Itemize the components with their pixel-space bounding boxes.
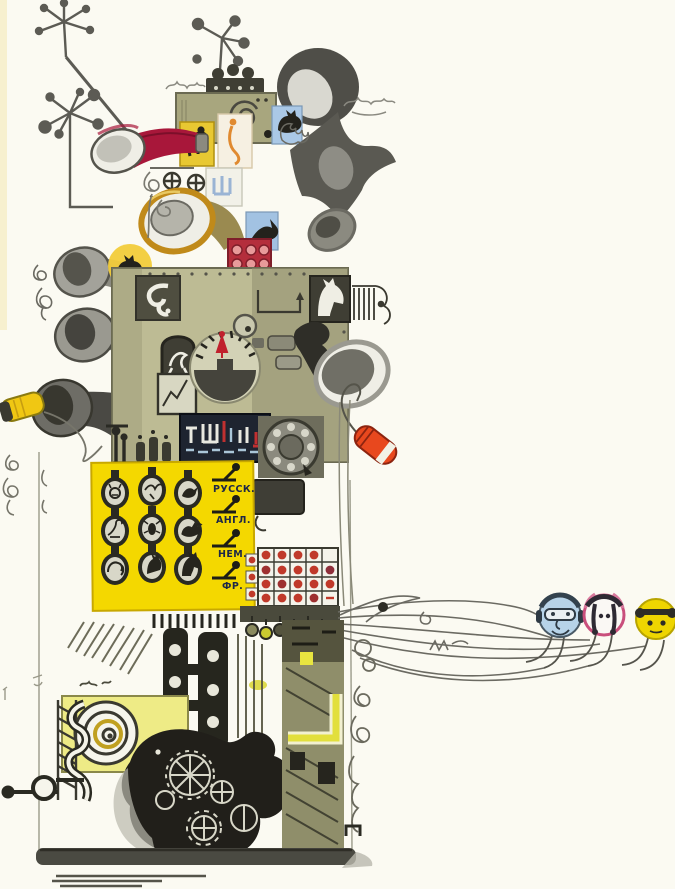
hand-crank (2, 777, 59, 799)
rotary-dial (258, 416, 324, 478)
machine-base (36, 848, 372, 886)
red-trumpet (86, 123, 208, 180)
label-russian: РУССК. (213, 484, 255, 495)
letters-card (206, 168, 242, 206)
small-horn-under-star (302, 202, 363, 259)
gauge (190, 331, 260, 403)
right-column (282, 620, 344, 852)
label-english: АНГЛ. (216, 515, 251, 526)
orange-figure-card (218, 114, 252, 168)
label-french: ФР. (222, 581, 243, 592)
top-knob-strip (206, 64, 264, 95)
glyph-plate (180, 414, 270, 462)
chart-frame (158, 374, 196, 414)
illustration-page: РУССК. АНГЛ. НЕМ. ФР. (0, 0, 675, 889)
page-edge (0, 0, 7, 330)
animal-buttons (101, 467, 202, 585)
coil-scribbles-left (3, 455, 47, 515)
scribble-small (80, 681, 111, 686)
wire-junction-dot (378, 602, 388, 612)
relay-box (252, 480, 304, 530)
hatch-left (68, 622, 152, 674)
label-german: НЕМ. (218, 549, 247, 560)
red-dot-strip (246, 554, 258, 600)
translation-machine-illustration: РУССК. АНГЛ. НЕМ. ФР. (0, 0, 675, 889)
squirrel-plate (136, 276, 180, 320)
orange-microphone (339, 384, 401, 606)
horse-plate (310, 276, 350, 322)
pipe-comb (352, 286, 390, 324)
keyboard-panel: РУССК. АНГЛ. НЕМ. ФР. (91, 461, 255, 611)
small-dial (234, 315, 256, 337)
arch-window (162, 337, 194, 378)
punch-card-grid (258, 548, 338, 606)
scribble-word-top (166, 82, 205, 89)
listener-yellow (622, 599, 675, 670)
cat-block-blue (272, 106, 302, 144)
